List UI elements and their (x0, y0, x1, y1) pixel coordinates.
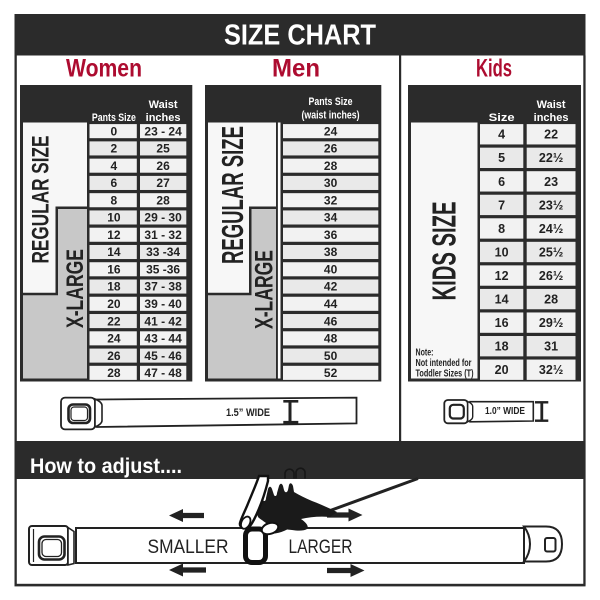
svg-text:Pants Size: Pants Size (309, 96, 353, 108)
svg-text:1.0” WIDE: 1.0” WIDE (485, 406, 525, 417)
svg-text:0: 0 (111, 124, 118, 138)
svg-text:52: 52 (324, 366, 338, 380)
svg-text:28: 28 (324, 159, 338, 173)
svg-text:1.5” WIDE: 1.5” WIDE (226, 407, 270, 419)
svg-text:10: 10 (107, 211, 121, 225)
svg-text:14: 14 (495, 292, 509, 306)
svg-text:Kids: Kids (476, 55, 512, 83)
svg-text:28: 28 (107, 366, 121, 380)
svg-text:LARGER: LARGER (289, 537, 353, 558)
svg-text:inches: inches (534, 112, 569, 124)
svg-text:24: 24 (107, 332, 121, 346)
svg-text:47 - 48: 47 - 48 (144, 366, 182, 380)
svg-text:16: 16 (107, 262, 121, 276)
svg-text:22: 22 (544, 128, 558, 142)
svg-text:X-LARGE: X-LARGE (62, 249, 89, 328)
svg-text:REGULAR SIZE: REGULAR SIZE (27, 136, 54, 264)
svg-text:33 -34: 33 -34 (146, 245, 180, 259)
svg-text:16: 16 (495, 316, 509, 330)
svg-text:8: 8 (498, 222, 505, 236)
svg-text:32: 32 (324, 193, 338, 207)
svg-text:45 - 46: 45 - 46 (144, 349, 182, 363)
svg-text:4: 4 (498, 128, 505, 142)
svg-text:4: 4 (111, 159, 118, 173)
svg-text:25: 25 (156, 142, 170, 156)
svg-text:Size: Size (489, 112, 515, 124)
svg-text:12: 12 (107, 228, 121, 242)
svg-text:29½: 29½ (539, 316, 563, 330)
svg-text:(waist inches): (waist inches) (302, 110, 360, 122)
svg-text:27: 27 (156, 176, 170, 190)
svg-text:23 - 24: 23 - 24 (144, 124, 182, 138)
svg-text:7: 7 (498, 198, 505, 212)
svg-text:35 -36: 35 -36 (146, 262, 180, 276)
svg-text:Men: Men (272, 55, 320, 83)
svg-text:36: 36 (324, 228, 338, 242)
svg-text:26: 26 (324, 142, 338, 156)
svg-text:How to adjust....: How to adjust.... (30, 455, 182, 478)
svg-text:10: 10 (495, 245, 509, 259)
svg-text:31: 31 (544, 340, 558, 354)
svg-text:28: 28 (544, 292, 558, 306)
svg-text:REGULAR SIZE: REGULAR SIZE (215, 126, 250, 264)
svg-text:23½: 23½ (539, 198, 563, 212)
svg-text:48: 48 (324, 332, 338, 346)
svg-text:18: 18 (107, 280, 121, 294)
svg-text:X-LARGE: X-LARGE (250, 250, 278, 329)
svg-text:12: 12 (495, 269, 509, 283)
svg-text:2: 2 (111, 142, 118, 156)
svg-text:31 - 32: 31 - 32 (144, 228, 182, 242)
svg-text:29 - 30: 29 - 30 (144, 211, 182, 225)
svg-text:41 - 42: 41 - 42 (144, 314, 182, 328)
svg-text:KIDS SIZE: KIDS SIZE (426, 202, 463, 301)
svg-text:44: 44 (324, 297, 338, 311)
svg-text:Women: Women (66, 55, 142, 83)
svg-text:18: 18 (495, 340, 509, 354)
svg-text:22: 22 (107, 314, 121, 328)
svg-text:24½: 24½ (539, 222, 563, 236)
svg-text:Waist: Waist (537, 99, 566, 111)
svg-text:Pants Size: Pants Size (92, 112, 136, 124)
svg-text:24: 24 (324, 124, 338, 138)
svg-text:22½: 22½ (539, 151, 563, 165)
svg-text:23: 23 (544, 175, 558, 189)
svg-text:5: 5 (498, 151, 505, 165)
svg-text:34: 34 (324, 211, 338, 225)
svg-text:6: 6 (498, 175, 505, 189)
svg-text:inches: inches (146, 112, 181, 124)
svg-text:46: 46 (324, 314, 338, 328)
svg-text:38: 38 (324, 245, 338, 259)
svg-text:Waist: Waist (149, 99, 178, 111)
svg-text:SIZE CHART: SIZE CHART (224, 20, 376, 52)
svg-text:30: 30 (324, 176, 338, 190)
svg-text:SMALLER: SMALLER (148, 537, 229, 558)
svg-text:42: 42 (324, 280, 338, 294)
svg-text:6: 6 (111, 176, 118, 190)
svg-text:50: 50 (324, 349, 338, 363)
svg-text:40: 40 (324, 262, 338, 276)
svg-text:39 - 40: 39 - 40 (144, 297, 182, 311)
svg-text:26: 26 (107, 349, 121, 363)
svg-text:43 - 44: 43 - 44 (144, 332, 182, 346)
svg-text:20: 20 (107, 297, 121, 311)
svg-text:20: 20 (495, 363, 509, 377)
svg-text:26½: 26½ (539, 269, 563, 283)
svg-text:28: 28 (156, 193, 170, 207)
svg-text:32½: 32½ (539, 363, 563, 377)
svg-text:8: 8 (111, 193, 118, 207)
svg-text:26: 26 (156, 159, 170, 173)
svg-text:37 - 38: 37 - 38 (144, 280, 182, 294)
svg-text:Toddler Sizes (T): Toddler Sizes (T) (416, 368, 474, 380)
svg-text:14: 14 (107, 245, 121, 259)
svg-text:25½: 25½ (539, 245, 563, 259)
